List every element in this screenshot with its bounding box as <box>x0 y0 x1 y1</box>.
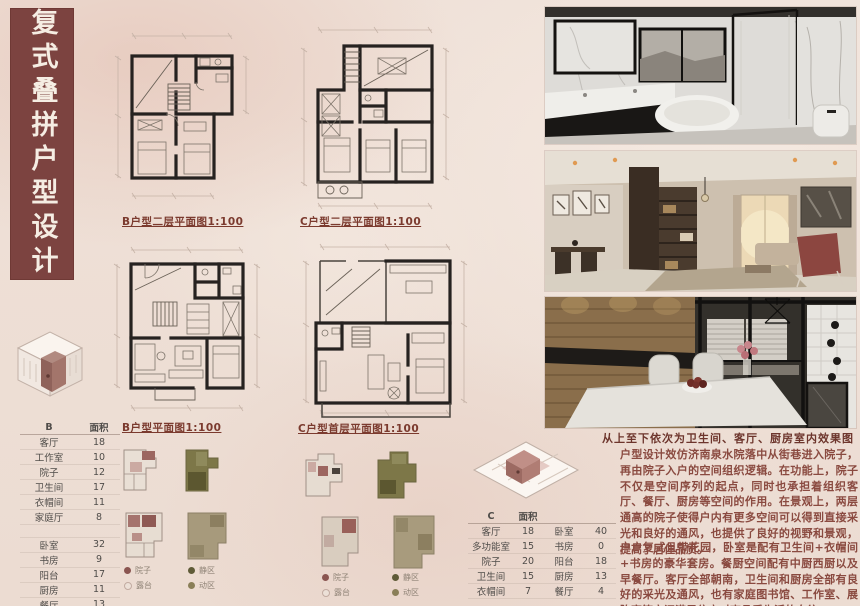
table-row <box>468 599 616 606</box>
table-cell: 书房 <box>542 539 586 553</box>
zoning-diagram-b2-zones <box>184 448 220 493</box>
table-cell: 9 <box>78 554 120 565</box>
table-cell: 10 <box>78 452 120 463</box>
zoning-diagram-b1-courtyard <box>124 511 164 559</box>
table-cell: 13 <box>78 599 120 606</box>
table-row: 厨房11 <box>20 583 120 598</box>
table-row: 餐厅13 <box>20 598 120 606</box>
plan-label-b-first: B户型平面图1:100 <box>122 420 221 435</box>
table-cell: 18 <box>514 526 542 537</box>
table-header: B 面积 <box>20 420 120 435</box>
floor-plan-c-first <box>290 235 485 420</box>
table-cell: 书房 <box>20 553 78 567</box>
table-cell: 阳台 <box>542 554 586 568</box>
table-cell: 院子 <box>468 554 514 568</box>
zoning-diagram-c1-zones <box>376 450 418 500</box>
bathroom-render-photo <box>545 7 856 144</box>
table-cell: 0 <box>586 541 616 552</box>
table-row: 院子20阳台18 <box>468 554 616 569</box>
table-row: 衣帽间7餐厅4 <box>468 584 616 599</box>
table-row: 多功能室15书房0 <box>468 539 616 554</box>
table-cell: 20 <box>514 556 542 567</box>
zoning-diagram-b2-courtyard <box>122 448 158 492</box>
table-cell: 18 <box>586 556 616 567</box>
courtyard-dot-icon <box>124 567 131 574</box>
plan-label-c-second: C户型二层平面图1:100 <box>300 214 421 229</box>
table-row: 工作室10 <box>20 450 120 465</box>
table-cell: 卫生间 <box>468 569 514 583</box>
living-room-render-photo <box>545 151 856 291</box>
axonometric-c-icon <box>468 432 584 508</box>
floor-plan-b-second <box>92 22 272 212</box>
zoning-diagram-b1-zones <box>186 511 228 561</box>
renders-caption: 从上至下依次为卫生间、客厅、厨房室内效果图 <box>602 430 854 446</box>
zoning-diagram-c2-zones <box>392 514 436 570</box>
design-poster: 复式叠拼户型设计 <box>0 0 860 606</box>
table-cell: 厨房 <box>542 569 586 583</box>
table-cell: 餐厅 <box>20 598 78 606</box>
quiet-zone-dot-icon <box>392 574 399 581</box>
table-row: 卫生间15厨房13 <box>468 569 616 584</box>
courtyard-dot-icon <box>322 574 329 581</box>
table-row: 书房9 <box>20 553 120 568</box>
table-cell: 12 <box>78 467 120 478</box>
table-row: 院子12 <box>20 465 120 480</box>
table-cell: 衣帽间 <box>20 495 78 509</box>
table-cell: 4 <box>586 586 616 597</box>
table-row: 客厅18 <box>20 435 120 450</box>
table-row: 家庭厅8 <box>20 510 120 525</box>
table-row: 阳台17 <box>20 568 120 583</box>
active-zone-dot-icon <box>392 589 399 596</box>
active-zone-dot-icon <box>188 582 195 589</box>
area-table-c: C 面积 客厅18卧室40多功能室15书房0院子20阳台18卫生间15厨房13衣… <box>468 509 616 606</box>
table-cell: 11 <box>78 584 120 595</box>
legend-b-left: 院子 露台 <box>124 563 152 593</box>
table-cell: 卧室 <box>20 538 78 552</box>
area-table-b: B 面积 客厅18工作室10院子12卫生间17衣帽间11家庭厅8卧室32书房9阳… <box>20 420 120 606</box>
terrace-dot-icon <box>322 589 330 597</box>
poster-title-banner: 复式叠拼户型设计 <box>10 8 74 280</box>
quiet-zone-dot-icon <box>188 567 195 574</box>
terrace-dot-icon <box>124 582 132 590</box>
table-cell: 15 <box>514 571 542 582</box>
table-cell: 17 <box>78 482 120 493</box>
table-cell: 多功能室 <box>468 539 514 553</box>
table-cell: 18 <box>78 437 120 448</box>
table-cell: 工作室 <box>20 450 78 464</box>
table-cell: 卧室 <box>542 524 586 538</box>
table-row <box>20 525 120 538</box>
legend-c-left: 院子 露台 <box>322 570 350 600</box>
zoning-diagram-c1-courtyard <box>304 452 344 498</box>
legend-c-right: 静区 动区 <box>392 570 419 600</box>
unit-features-paragraph: 户户复式且带花园，卧室是配有卫生间+衣帽间+书房的豪华套房。餐厨空间配有中厨西厨… <box>620 540 858 606</box>
table-cell: 17 <box>78 569 120 580</box>
table-cell: 40 <box>586 526 616 537</box>
table-row: 卫生间17 <box>20 480 120 495</box>
table-cell: 卫生间 <box>20 480 78 494</box>
zoning-diagram-c2-courtyard <box>320 515 360 568</box>
dining-kitchen-render-photo <box>545 297 856 428</box>
table-cell: 15 <box>514 541 542 552</box>
table-cell: 院子 <box>20 465 78 479</box>
table-cell: 13 <box>586 571 616 582</box>
table-cell: 厨房 <box>20 583 78 597</box>
table-cell: 11 <box>78 497 120 508</box>
table-row: 客厅18卧室40 <box>468 524 616 539</box>
table-cell: 客厅 <box>468 524 514 538</box>
plan-label-c-first: C户型首层平面图1:100 <box>298 421 419 436</box>
table-cell: 7 <box>514 586 542 597</box>
floor-plan-b-first <box>95 238 280 418</box>
table-cell: 32 <box>78 539 120 550</box>
table-cell: 客厅 <box>20 435 78 449</box>
table-cell: 阳台 <box>20 568 78 582</box>
table-cell: 餐厅 <box>542 584 586 598</box>
table-row: 衣帽间11 <box>20 495 120 510</box>
poster-title: 复式叠拼户型设计 <box>23 8 62 280</box>
axonometric-b-icon <box>8 318 92 406</box>
table-header: C 面积 <box>468 509 616 524</box>
floor-plan-c-second <box>282 18 472 218</box>
legend-b-right: 静区 动区 <box>188 563 215 593</box>
table-cell: 家庭厅 <box>20 510 78 524</box>
table-cell: 8 <box>78 512 120 523</box>
table-row: 卧室32 <box>20 538 120 553</box>
table-cell: 衣帽间 <box>468 584 514 598</box>
plan-label-b-second: B户型二层平面图1:100 <box>122 214 243 229</box>
